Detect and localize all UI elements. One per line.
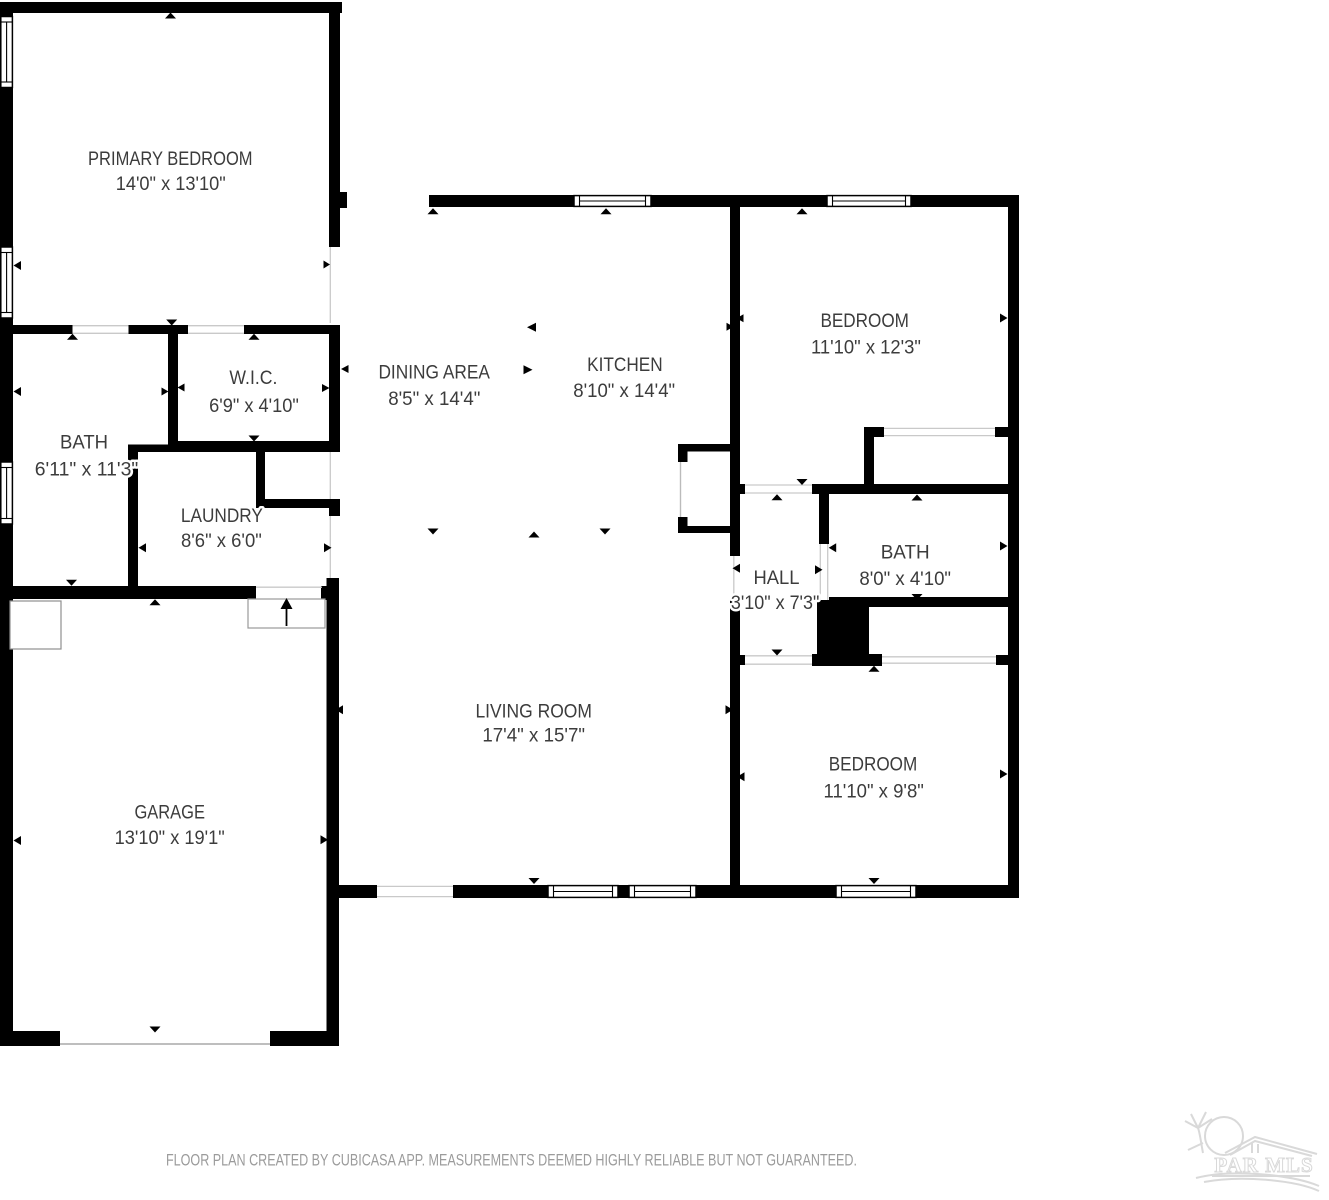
svg-text:6'11" x 11'3": 6'11" x 11'3" [35,460,139,481]
svg-text:11'10" x 12'3": 11'10" x 12'3" [811,338,921,359]
svg-text:HALL: HALL [754,568,800,589]
svg-text:BEDROOM: BEDROOM [820,311,909,332]
svg-text:11'10" x 9'8": 11'10" x 9'8" [824,782,924,803]
svg-text:BATH: BATH [881,542,930,563]
svg-text:W.I.C.: W.I.C. [229,368,277,389]
svg-text:3'10" x 7'3": 3'10" x 7'3" [731,593,820,614]
svg-text:8'6" x 6'0": 8'6" x 6'0" [181,531,262,552]
svg-text:6'9" x 4'10": 6'9" x 4'10" [209,396,299,417]
svg-text:14'0" x 13'10": 14'0" x 13'10" [116,174,226,195]
svg-text:LIVING ROOM: LIVING ROOM [475,701,592,722]
svg-text:PAR MLS: PAR MLS [1214,1153,1313,1177]
svg-text:BATH: BATH [60,432,108,453]
svg-text:8'10" x 14'4": 8'10" x 14'4" [573,381,675,402]
svg-text:BEDROOM: BEDROOM [829,755,918,776]
svg-text:FLOOR PLAN CREATED BY CUBICASA: FLOOR PLAN CREATED BY CUBICASA APP. MEAS… [166,1151,857,1170]
svg-text:GARAGE: GARAGE [134,803,205,824]
svg-text:PRIMARY BEDROOM: PRIMARY BEDROOM [88,149,253,170]
svg-text:DINING AREA: DINING AREA [378,363,490,384]
svg-text:8'0" x 4'10": 8'0" x 4'10" [859,569,951,590]
svg-text:8'5" x 14'4": 8'5" x 14'4" [388,389,480,410]
svg-text:17'4" x 15'7": 17'4" x 15'7" [482,726,585,747]
svg-text:KITCHEN: KITCHEN [587,355,663,376]
svg-text:LAUNDRY: LAUNDRY [181,506,263,527]
svg-text:13'10" x 19'1": 13'10" x 19'1" [115,828,225,849]
